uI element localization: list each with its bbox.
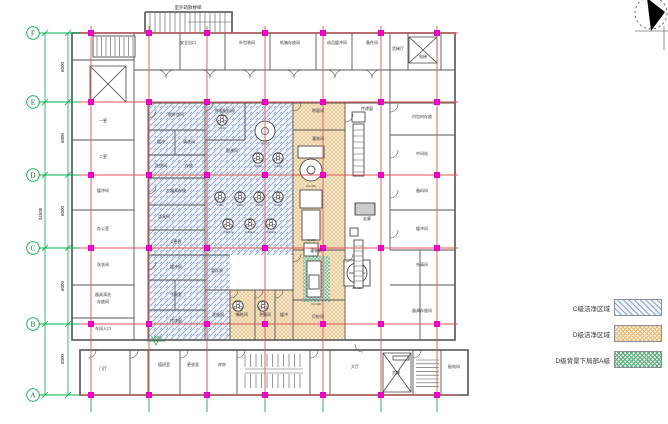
- legend-swatch-d-grade: [614, 325, 662, 342]
- grid-node: [204, 392, 209, 397]
- bay-dimension: 6000: [60, 353, 65, 364]
- grid-node: [434, 245, 439, 250]
- grid-node: [378, 30, 383, 35]
- grid-node: [262, 392, 267, 397]
- grid-node: [434, 99, 439, 104]
- room-label: 外清间: [416, 261, 428, 267]
- room-label: 车间入口: [95, 325, 111, 331]
- grid-node: [434, 172, 439, 177]
- tank-symbol: V-204: [273, 192, 283, 207]
- room-label: 洗烘间: [155, 162, 167, 168]
- grid-node: [88, 245, 93, 250]
- elevator-shaft-icon: [90, 66, 126, 102]
- room-label: 库房: [218, 361, 226, 367]
- room-label: 电梯: [419, 53, 427, 59]
- legend-item: C级洁净区域: [536, 299, 662, 316]
- tank-symbol: V-201: [215, 192, 225, 207]
- exterior-stair-label: 室外疏散楼梯: [175, 4, 202, 11]
- legend-item: D级背景下局部A级: [536, 351, 662, 368]
- room-label: 备件间: [366, 39, 378, 45]
- room-label: 灌装机: [310, 247, 322, 253]
- room-label: 中间站: [416, 150, 428, 156]
- grid-node: [378, 392, 383, 397]
- room-label: 洗衣间: [97, 261, 109, 267]
- grid-node: [146, 245, 151, 250]
- room-label: 门厅: [99, 365, 107, 371]
- tank-symbol: V-202: [235, 192, 245, 207]
- equipment-code: ZG-100: [352, 286, 362, 290]
- legend-label: D级背景下局部A级: [555, 355, 610, 365]
- grid-row-label: B: [30, 320, 35, 329]
- dimension-labels: 6000600060006000600034500: [38, 30, 71, 398]
- legend-swatch-c-grade: [614, 299, 662, 316]
- grid-node: [378, 321, 383, 326]
- room-label: 货梯厅: [392, 45, 404, 51]
- grid-node: [434, 321, 439, 326]
- room-label: 存放: [185, 162, 193, 168]
- grid-node: [88, 172, 93, 177]
- bay-dimension: 6000: [60, 205, 65, 216]
- room-label: 外包装间: [239, 39, 255, 45]
- room-label: 洗瓶间: [212, 311, 224, 317]
- north-arrow-icon: [635, 0, 668, 50]
- grid-row-label: C: [30, 244, 35, 253]
- room-label: 二更: [99, 154, 107, 159]
- grid-row-label: E: [31, 98, 36, 107]
- room-label: 传递窗: [361, 105, 373, 111]
- room-label: 安全出口: [180, 39, 196, 45]
- grid-node: [88, 392, 93, 397]
- tank-code: V-203: [255, 203, 263, 207]
- grid-node: [204, 30, 209, 35]
- room-label: 更衣室: [187, 361, 199, 367]
- room-label: 值班室: [158, 361, 170, 367]
- tank-symbol: V-102: [253, 153, 263, 168]
- grid-node: [204, 321, 209, 326]
- grid-node: [88, 30, 93, 35]
- grid-node: [262, 99, 267, 104]
- tank-symbol: V-203: [254, 192, 264, 207]
- grid-node: [378, 245, 383, 250]
- tank-code: V-101: [218, 126, 226, 130]
- room-label: 缓冲间: [170, 263, 182, 269]
- room-label: 缓冲: [157, 138, 165, 144]
- grid-node: [320, 172, 325, 177]
- grid-node: [434, 392, 439, 397]
- grid-node: [88, 321, 93, 326]
- room-label: 办公室: [97, 225, 109, 231]
- tank-symbol: V-301-2: [245, 219, 256, 234]
- tank-symbol: V-101: [217, 115, 227, 130]
- room-label: 灭菌间: [259, 311, 271, 317]
- grid-node: [204, 99, 209, 104]
- equipment-code: XG-300: [306, 184, 316, 188]
- tank-code: V-301-2: [245, 230, 255, 234]
- grid-node: [204, 245, 209, 250]
- room-label: 工器具存放: [166, 187, 186, 193]
- room-label: 气闸室: [170, 291, 182, 297]
- tank-symbol: V-301-1: [223, 219, 234, 234]
- room-label: 清洗间: [236, 311, 248, 317]
- room-label: 洁具间: [158, 213, 170, 219]
- tank-code: V-201: [216, 203, 224, 207]
- grid-row-label: F: [31, 29, 35, 38]
- tank-code: V-301-1: [223, 230, 233, 234]
- room-label: 配电间: [448, 363, 460, 369]
- grid-node: [320, 30, 325, 35]
- tank-code: V-202: [236, 203, 244, 207]
- room-label: 缓冲间: [97, 187, 109, 193]
- room-label: 缓冲: [280, 311, 288, 317]
- grid-node: [320, 392, 325, 397]
- grid-node: [204, 172, 209, 177]
- room-label: C更衣: [171, 238, 182, 244]
- grid-node: [378, 99, 383, 104]
- room-label: 传递窗: [170, 317, 182, 323]
- bay-dimension: 6000: [60, 280, 65, 291]
- room-label: 脱外包间: [168, 111, 184, 117]
- grid-node: [434, 30, 439, 35]
- grid-node: [88, 99, 93, 104]
- grid-node: [262, 321, 267, 326]
- room-label: 走廊: [363, 215, 371, 221]
- grid-row-label: D: [30, 171, 36, 180]
- bay-dimension: 6000: [60, 132, 65, 143]
- grid-node: [262, 30, 267, 35]
- room-label: 存放间: [97, 298, 109, 304]
- equipment-code: XC-100: [311, 302, 321, 306]
- legend-label: D级洁净区域: [573, 329, 610, 339]
- legend-swatch-a-local: [614, 351, 662, 368]
- room-label: 成品缓冲间: [327, 39, 347, 45]
- tank-code: V-102: [254, 164, 262, 168]
- grid-node: [320, 321, 325, 326]
- grid-row-label: A: [30, 391, 36, 400]
- room-label: 器具存放间: [412, 307, 432, 313]
- room-label: 大厅: [351, 363, 359, 369]
- room-label: 暂存间: [211, 267, 223, 273]
- room-label: 器具清洗: [95, 291, 111, 297]
- elevation-value: 4.900: [150, 335, 162, 340]
- floor-plan-page: { "grid": { "row_labels": ["F","E","D","…: [0, 0, 668, 424]
- grid-node: [146, 99, 151, 104]
- grid-node: [262, 245, 267, 250]
- tank-symbol: V-301-3: [266, 219, 277, 234]
- legend: C级洁净区域 D级洁净区域 D级背景下局部A级: [536, 299, 662, 377]
- room-label: 配液间: [226, 147, 238, 153]
- legend-label: C级洁净区域: [573, 303, 610, 313]
- total-dimension: 34500: [38, 207, 43, 220]
- grid-node: [146, 392, 151, 397]
- bay-dimension: 6000: [60, 61, 65, 72]
- room-label: 货梯: [392, 369, 400, 375]
- room-label: 称量配料间: [215, 107, 235, 113]
- equipment-code: YG-200: [306, 238, 316, 242]
- grid-node: [146, 321, 151, 326]
- room-label: 称量间: [312, 107, 324, 113]
- grid-node: [262, 172, 267, 177]
- room-label: 一更: [99, 118, 107, 123]
- room-label: 清洗间: [183, 138, 195, 144]
- tank-symbol: V-103: [273, 153, 283, 168]
- grid-node: [146, 172, 151, 177]
- tank-code: V-103: [274, 164, 282, 168]
- room-label: 灯检间: [312, 313, 324, 319]
- room-label: 内包材存放: [412, 113, 432, 119]
- room-label: 灌装间: [312, 135, 324, 141]
- room-label: 缓冲间: [416, 225, 428, 231]
- elevation-triangle-icon: [147, 341, 165, 345]
- tank-code: V-204: [274, 203, 282, 207]
- elevator-shaft-icon: [409, 37, 437, 63]
- legend-item: D级洁净区域: [536, 325, 662, 342]
- grid-node: [378, 172, 383, 177]
- room-label: 备料间: [416, 187, 428, 193]
- grid-node: [320, 99, 325, 104]
- tank-code: V-301-3: [266, 230, 276, 234]
- grid-node: [146, 30, 151, 35]
- room-label: 纸箱存放间: [280, 39, 300, 45]
